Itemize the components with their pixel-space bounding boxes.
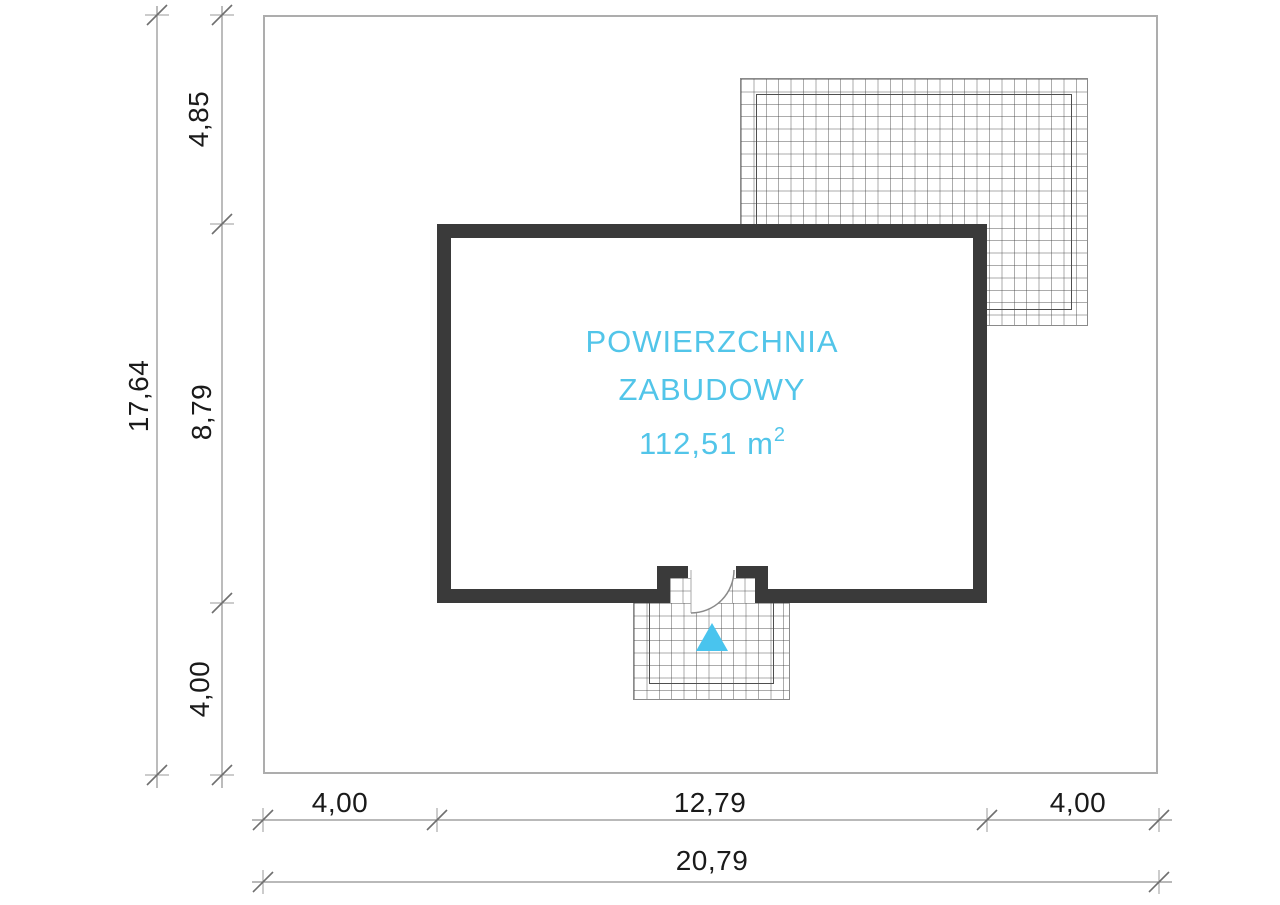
dimension-setback-left: 4,00: [312, 787, 369, 819]
site-plan-drawing: POWIERZCHNIA ZABUDOWY 112,51 m2 17,64 4,…: [0, 0, 1280, 905]
building-footprint: [437, 224, 987, 603]
dimension-site-width: 20,79: [676, 845, 749, 877]
building-wall-left: [437, 224, 451, 603]
building-area-value: 112,51 m2: [639, 426, 785, 462]
building-wall-bottom-right: [755, 589, 987, 603]
building-wall-bottom-left: [437, 589, 657, 603]
door-jamb-right: [755, 566, 768, 603]
building-label-line1: POWIERZCHNIA: [585, 324, 838, 360]
dimension-setback-right: 4,00: [1050, 787, 1107, 819]
door-reveal-left: [657, 566, 688, 578]
building-wall-top: [437, 224, 987, 238]
dimension-setback-top: 4,85: [183, 91, 215, 148]
building-label-line2: ZABUDOWY: [618, 372, 805, 408]
dimension-site-height: 17,64: [123, 360, 155, 433]
entrance-triangle-icon: [696, 623, 728, 651]
dimension-building-depth: 8,79: [186, 384, 218, 441]
dimension-building-width: 12,79: [674, 787, 747, 819]
building-area-number: 112,51 m: [639, 426, 774, 461]
building-wall-right: [973, 224, 987, 603]
dimension-setback-bottom: 4,00: [184, 661, 216, 718]
building-area-exponent: 2: [774, 424, 785, 446]
